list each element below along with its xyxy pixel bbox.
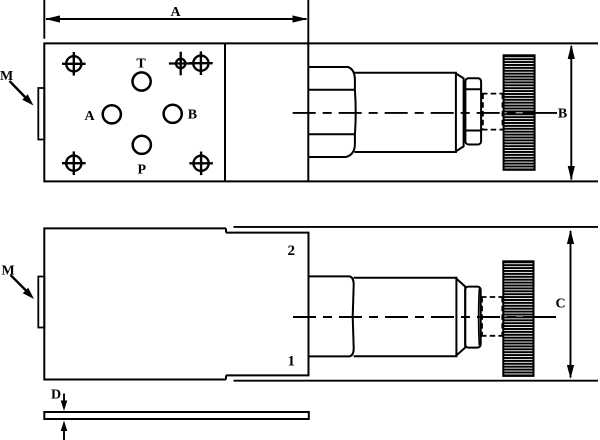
svg-text:A: A xyxy=(84,109,95,124)
svg-text:C: C xyxy=(555,296,565,311)
svg-text:D: D xyxy=(51,388,61,403)
svg-text:B: B xyxy=(188,108,197,123)
svg-text:1: 1 xyxy=(287,353,295,369)
svg-text:P: P xyxy=(138,162,147,177)
svg-text:2: 2 xyxy=(287,243,295,259)
svg-text:B: B xyxy=(558,107,567,122)
svg-text:A: A xyxy=(170,5,181,20)
svg-text:T: T xyxy=(136,56,146,71)
